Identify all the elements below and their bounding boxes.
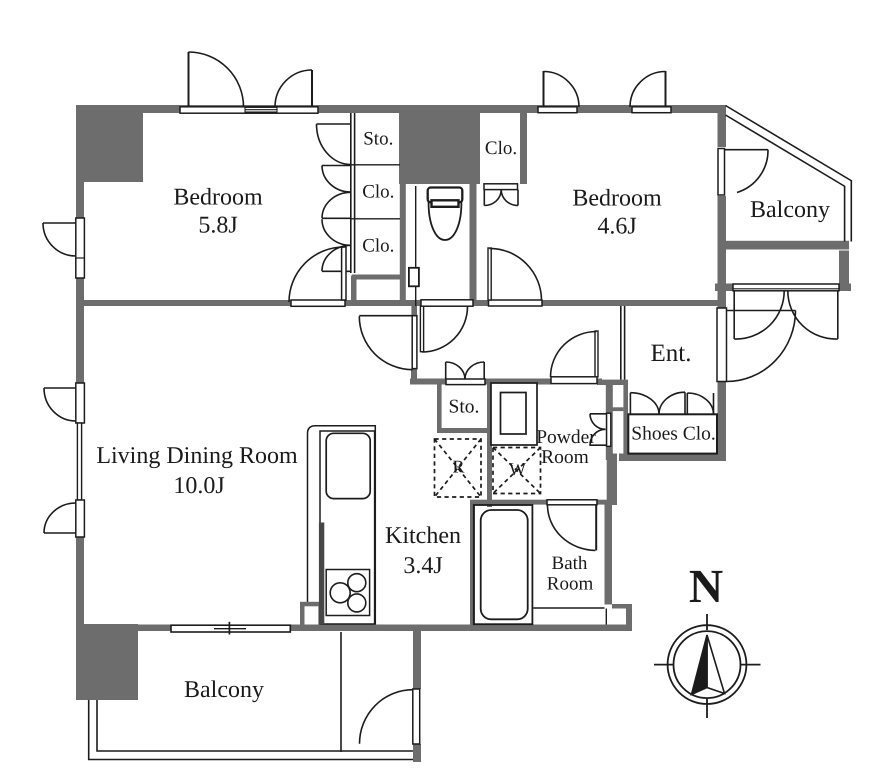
- svg-text:3.4J: 3.4J: [403, 553, 442, 579]
- svg-text:Sto.: Sto.: [363, 129, 393, 150]
- svg-text:Balcony: Balcony: [750, 197, 830, 223]
- svg-text:Living Dining Room: Living Dining Room: [96, 443, 298, 469]
- svg-text:Shoes Clo.: Shoes Clo.: [631, 424, 716, 445]
- svg-text:Room: Room: [547, 574, 594, 595]
- svg-text:10.0J: 10.0J: [173, 473, 224, 499]
- svg-text:Sto.: Sto.: [449, 397, 480, 418]
- svg-text:R: R: [452, 457, 464, 477]
- svg-text:Bath: Bath: [552, 553, 588, 574]
- svg-text:Balcony: Balcony: [184, 677, 264, 703]
- svg-text:Clo.: Clo.: [485, 138, 517, 159]
- svg-text:Kitchen: Kitchen: [385, 523, 461, 549]
- svg-text:5.8J: 5.8J: [198, 213, 237, 239]
- svg-text:Powder: Powder: [536, 427, 596, 448]
- svg-text:Clo.: Clo.: [362, 182, 394, 203]
- svg-text:Ent.: Ent.: [651, 340, 692, 367]
- svg-text:Bedroom: Bedroom: [173, 185, 263, 211]
- svg-text:W: W: [509, 459, 526, 479]
- svg-text:Clo.: Clo.: [362, 236, 394, 257]
- svg-text:Room: Room: [541, 447, 589, 468]
- svg-text:4.6J: 4.6J: [597, 214, 636, 240]
- svg-text:N: N: [689, 561, 723, 613]
- svg-text:Bedroom: Bedroom: [572, 186, 662, 212]
